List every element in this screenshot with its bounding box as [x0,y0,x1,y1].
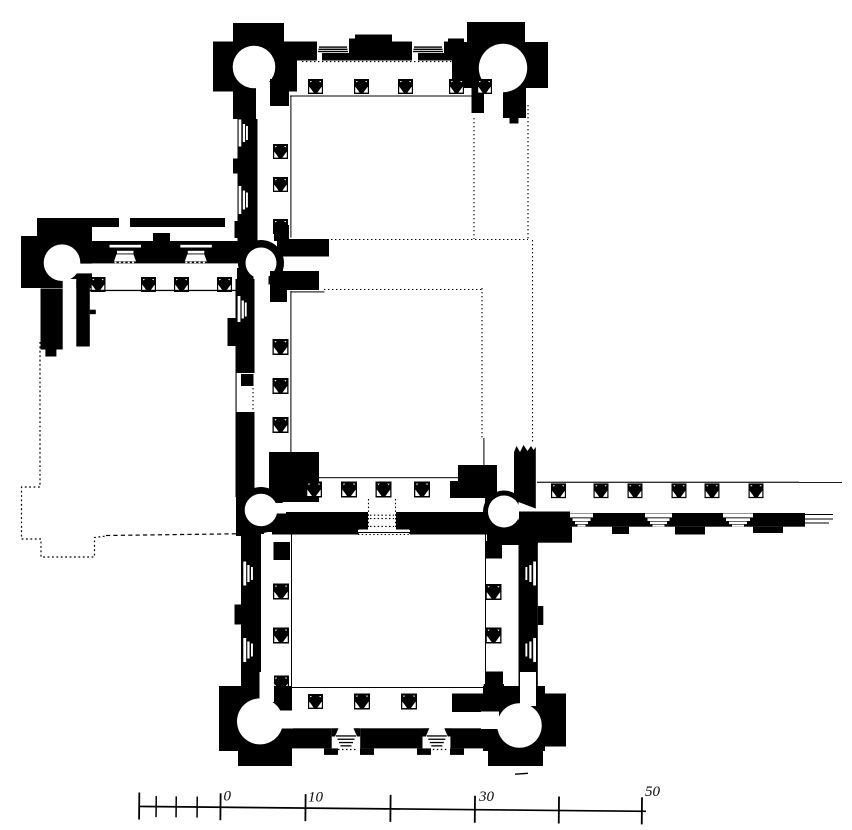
svg-text:10: 10 [308,790,324,806]
svg-text:50: 50 [645,784,661,800]
svg-text:30: 30 [478,789,495,805]
svg-text:0: 0 [224,789,232,805]
